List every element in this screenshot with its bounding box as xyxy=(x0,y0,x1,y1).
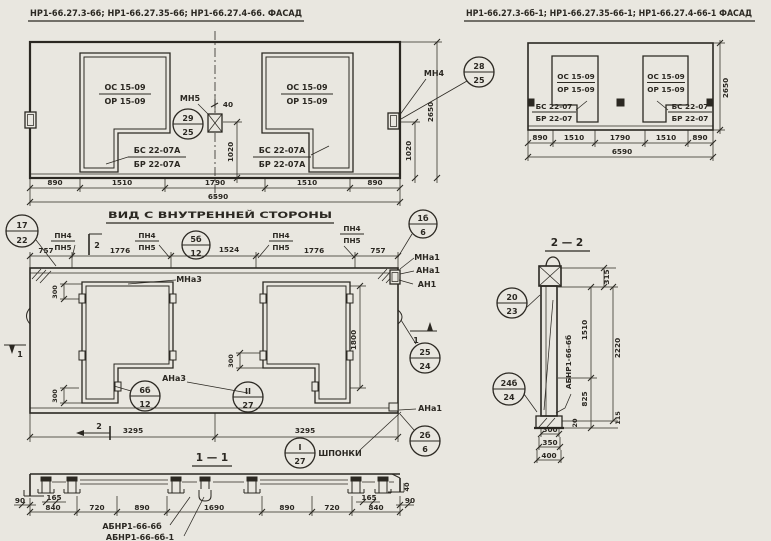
dim-text: 400 xyxy=(541,451,556,460)
dim-text: 1510 xyxy=(112,178,132,187)
dim-300-top: 300 xyxy=(51,281,82,302)
rail-bot: ПН5 xyxy=(138,243,155,252)
label-ana1-bottom: АНа1 xyxy=(418,404,442,413)
opening-left xyxy=(82,282,173,403)
part-label-leader xyxy=(556,394,571,413)
part-label-main: АБНР1-66-6б xyxy=(102,521,162,531)
callout-17-22: 17 22 xyxy=(6,215,56,266)
dim-text: 720 xyxy=(89,503,104,512)
edge-anchor-right xyxy=(388,113,399,129)
section-2-2: 2 — 2 АБНР1-66-6б 3 xyxy=(493,237,622,463)
dim-text: 3295 xyxy=(123,426,143,435)
anchor-mn4-label: МН4 xyxy=(424,69,445,78)
shponka-key xyxy=(199,490,211,501)
callout-num: II xyxy=(245,387,251,396)
dim-1020-mid: 1020 xyxy=(223,119,242,183)
section-2-2-width-dims: 300 350 400 xyxy=(534,425,564,463)
dim-text: 1776 xyxy=(110,246,130,255)
channel-rib xyxy=(200,477,210,489)
marker-label: 2 xyxy=(94,241,100,250)
channel-rib xyxy=(38,477,54,493)
part-label-mirror: АБНР1-66-6б-1 xyxy=(106,532,175,541)
callout-num: 2б xyxy=(419,430,431,440)
inner-view-bottom-dims: 3295 3295 xyxy=(27,413,401,442)
sill-mark-right: БС 22-07 БР 22-07 xyxy=(657,101,712,123)
dim-text: 840 xyxy=(45,503,60,512)
dim-text: 890 xyxy=(47,178,62,187)
rail-bot: ПН5 xyxy=(54,243,71,252)
callout-1-27-shponki: I 27 ШПОНКИ xyxy=(285,412,401,468)
edge-anchor-top-right xyxy=(390,270,400,284)
callout-sheet: 27 xyxy=(242,401,253,410)
dim-text: 115 xyxy=(614,411,622,425)
dim-40: 40 xyxy=(223,100,233,109)
dim-text: 1790 xyxy=(610,133,630,142)
weld-plate-mid xyxy=(617,99,624,106)
callout-1b-6: 1б 6 xyxy=(398,210,437,257)
rail-top: ПН4 xyxy=(138,231,155,240)
frame-mark: ОР 15-09 xyxy=(557,85,594,94)
rail-mark-2: ПН4 ПН5 xyxy=(135,231,170,258)
callout-num: 20 xyxy=(506,293,518,302)
blueprint-sheet: НР1-66.27.3-66; НР1-66.27.35-66; НР1-66.… xyxy=(0,0,771,541)
label-ana1: АНа1 xyxy=(416,266,440,275)
part-labels: АБНР1-66-6б АБНР1-66-6б-1 xyxy=(102,497,204,541)
channel-rib xyxy=(375,477,391,493)
callout-num: I xyxy=(299,443,302,452)
sash-mark: ОС 15-09 xyxy=(286,83,327,92)
anchor-mn5: МН5 40 xyxy=(180,94,233,132)
anchor-mn5-label: МН5 xyxy=(180,94,201,103)
dim-text: 1800 xyxy=(349,330,358,350)
section-1-1: 1 — 1 9 xyxy=(14,452,415,541)
callout-num: 5б xyxy=(190,234,202,244)
rail-bot: ПН5 xyxy=(272,243,289,252)
section-2-2-title: 2 — 2 xyxy=(551,237,583,249)
weld-plate-left xyxy=(528,99,534,106)
callout-sheet: 6 xyxy=(420,228,426,237)
end-dims-right: 165 90 40 xyxy=(356,482,415,508)
dim-text: 2650 xyxy=(426,102,435,122)
panel-section-body xyxy=(541,286,557,416)
lifting-loop xyxy=(546,257,560,266)
dim-2650-mirror: 2650 xyxy=(713,40,730,134)
section-1-marker-right: 1 xyxy=(410,322,437,345)
sill-top: БС 22-07А xyxy=(134,146,181,155)
callout-2b-6: 2б 6 xyxy=(400,414,440,456)
top-anchor-box xyxy=(539,266,561,286)
dim-text: 890 xyxy=(532,133,547,142)
section-1-marker-left: 1 xyxy=(4,345,26,359)
sill-bot: БР 22-07А xyxy=(259,160,306,169)
label-mna3: МНа3 xyxy=(176,275,202,284)
edge-anchor-left xyxy=(25,112,36,128)
panel-drawing: НР1-66.27.3-66; НР1-66.27.35-66; НР1-66.… xyxy=(0,0,771,541)
frame-mark: ОР 15-09 xyxy=(104,97,145,106)
panel-outline xyxy=(30,268,398,413)
dim-text: 890 xyxy=(279,503,294,512)
label-an1: АН1 xyxy=(418,280,437,289)
channel-rib xyxy=(64,477,80,493)
dim-text: 1510 xyxy=(297,178,317,187)
callout-mn5: 29 25 xyxy=(173,109,203,139)
sash-mark: ОС 15-09 xyxy=(647,72,684,81)
dim-text: 757 xyxy=(370,246,385,255)
dim-text: 840 xyxy=(368,503,383,512)
callout-sheet: 25 xyxy=(182,128,194,137)
dim-text: 165 xyxy=(46,493,61,502)
section-1-1-body xyxy=(24,474,404,501)
sill-bot: БР 22-07А xyxy=(134,160,181,169)
marker-label: 2 xyxy=(96,422,102,431)
dim-text: 1790 xyxy=(205,178,225,187)
sill-top: БС 22-07 xyxy=(536,102,573,111)
dim-text: 890 xyxy=(367,178,382,187)
inner-view-title: ВИД С ВНУТРЕННЕЙ СТОРОНЫ xyxy=(108,209,332,221)
dim-text: 825 xyxy=(580,391,589,406)
anchor-mn4-callout: МН4 28 25 xyxy=(399,57,494,119)
dim-text: 300 xyxy=(51,285,59,299)
callout-num: 1б xyxy=(417,213,429,223)
callout-20-23: 20 23 xyxy=(497,288,540,318)
callout-sheet: 27 xyxy=(294,457,305,466)
rail-mark-1: ПН4 ПН5 xyxy=(51,231,75,258)
dim-text: 300 xyxy=(51,389,59,403)
marker-label: 1 xyxy=(413,336,419,345)
sash-mark: ОС 15-09 xyxy=(557,72,594,81)
dim-text: 1690 xyxy=(204,503,224,512)
rail-mark-4: ПН4 ПН5 xyxy=(340,224,364,258)
dim-1020-right: 1020 xyxy=(401,119,420,183)
frame-mark: ОР 15-09 xyxy=(647,85,684,94)
dim-text: 1510 xyxy=(656,133,676,142)
sill-top: БС 22-07А xyxy=(259,146,306,155)
dim-text: 3295 xyxy=(295,426,315,435)
channel-rib xyxy=(348,477,364,493)
section-1-1-title: 1 — 1 xyxy=(196,452,228,464)
weld-plate-right xyxy=(707,99,713,106)
callout-num: 6б xyxy=(139,385,151,395)
channel-ribs xyxy=(38,477,391,493)
rail-top: ПН4 xyxy=(272,231,289,240)
corner-rebate-hatch xyxy=(32,269,397,283)
dim-text: 1524 xyxy=(219,245,239,254)
inner-view-top-dims: 757 1776 1524 1776 757 xyxy=(27,245,401,268)
dim-text: 890 xyxy=(134,503,149,512)
dim-text: 300 xyxy=(542,425,557,434)
facade-mirror-bottom-dims: 890 1510 1790 1510 890 6590 xyxy=(525,130,716,161)
sill-bot: БР 22-07 xyxy=(536,114,573,123)
dim-text: 1510 xyxy=(564,133,584,142)
callout-sheet: 12 xyxy=(139,400,150,409)
sill-top: БС 22-07 xyxy=(672,102,709,111)
callout-num: 24б xyxy=(501,378,518,388)
callout-sheet: 12 xyxy=(190,249,201,258)
sash-mark: ОС 15-09 xyxy=(104,83,145,92)
dim-text: 720 xyxy=(324,503,339,512)
rail-bot: ПН5 xyxy=(343,236,360,245)
dim-text: 2650 xyxy=(721,78,730,98)
facade-mirror-title: НР1-66.27.3-6б-1; НР1-66.27.35-66-1; НР1… xyxy=(466,8,752,19)
label-ana3: АНа3 xyxy=(162,374,186,383)
dim-300-right-opening: 300 xyxy=(227,350,263,371)
frame-mark: ОР 15-09 xyxy=(286,97,327,106)
dim-text: 315 xyxy=(602,269,611,284)
dim-text: 350 xyxy=(542,438,557,447)
callout-sheet: 25 xyxy=(473,76,485,85)
callout-sheet: 22 xyxy=(16,236,27,245)
dim-text: 2220 xyxy=(613,338,622,358)
sill-bot: БР 22-07 xyxy=(672,114,709,123)
callout-num: 28 xyxy=(473,62,485,71)
section-1-1-main-dims: 840 720 890 1690 890 720 840 xyxy=(27,496,403,516)
facade-main-title: НР1-66.27.3-66; НР1-66.27.35-66; НР1-66.… xyxy=(30,9,302,19)
dim-text: 890 xyxy=(692,133,707,142)
facade-main: НР1-66.27.3-66; НР1-66.27.35-66; НР1-66.… xyxy=(25,9,494,206)
dim-text: 757 xyxy=(38,246,53,255)
label-shponki: ШПОНКИ xyxy=(318,449,361,458)
dim-total-text: 6590 xyxy=(208,192,228,201)
part-label-vertical: АБНР1-66-6б xyxy=(564,335,573,389)
dim-300-bottom: 300 xyxy=(51,385,82,406)
callout-sheet: 24 xyxy=(503,393,515,402)
dim-text: 1510 xyxy=(580,320,589,340)
callout-num: 29 xyxy=(182,114,194,123)
dim-text: 300 xyxy=(227,354,235,368)
callout-sheet: 23 xyxy=(506,307,517,316)
label-mna1: МНа1 xyxy=(414,253,440,262)
channel-rib xyxy=(244,477,260,493)
section-2-marker-top: 2 xyxy=(89,234,102,255)
callout-num: 25 xyxy=(419,348,431,357)
facade-main-bottom-dims: 890 1510 1790 1510 890 6590 xyxy=(27,178,403,206)
dim-text: 20 xyxy=(571,418,579,428)
marker-label: 1 xyxy=(17,350,23,359)
callout-24b-24: 24б 24 xyxy=(493,373,537,412)
callout-num: 17 xyxy=(16,221,27,230)
opening-right xyxy=(263,282,350,403)
dim-text: 1020 xyxy=(404,141,413,161)
callout-5b-12: 5б 12 xyxy=(182,231,210,259)
dim-total-text: 6590 xyxy=(612,147,632,156)
callout-sheet: 24 xyxy=(419,362,431,371)
inner-view: ВИД С ВНУТРЕННЕЙ СТОРОНЫ 17 22 757 1776 … xyxy=(4,209,442,468)
callout-2-27: II 27 xyxy=(233,382,263,412)
rail-top: ПН4 xyxy=(343,224,360,233)
channel-rib xyxy=(168,477,184,493)
sill-mark-left: БС 22-07 БР 22-07 xyxy=(532,101,587,123)
sill-mark-right: БС 22-07А БР 22-07А xyxy=(253,146,329,169)
dim-text: 40 xyxy=(403,482,411,492)
rail-mark-3: ПН4 ПН5 xyxy=(258,231,293,258)
callout-25-24: 25 24 xyxy=(410,343,440,373)
dim-text: 1020 xyxy=(226,142,235,162)
rail-top: ПН4 xyxy=(54,231,71,240)
dim-text: 1776 xyxy=(304,246,324,255)
callout-sheet: 6 xyxy=(422,445,428,454)
facade-mirror: НР1-66.27.3-6б-1; НР1-66.27.35-66-1; НР1… xyxy=(464,8,755,161)
